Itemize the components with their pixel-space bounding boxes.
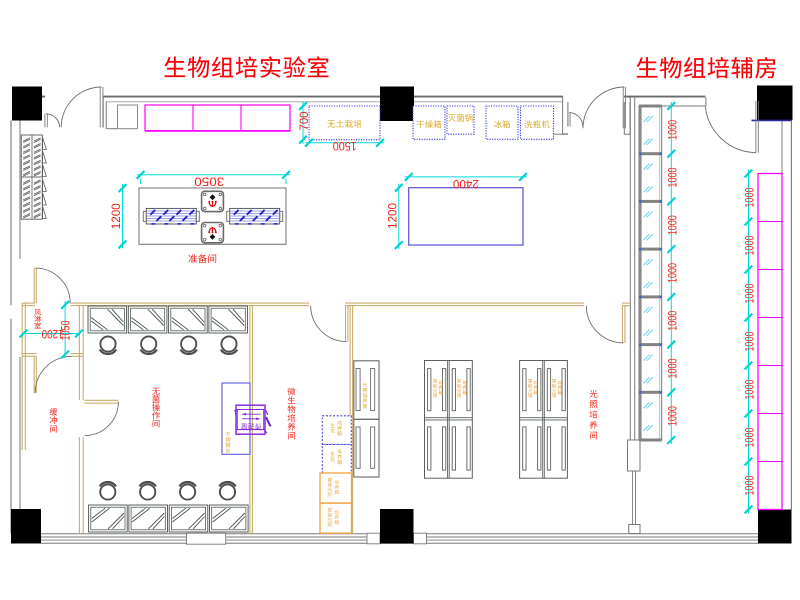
svg-text:1000: 1000 [667,311,679,331]
svg-text:1050: 1050 [60,321,72,341]
svg-text:2400: 2400 [453,177,479,189]
svg-text:1200: 1200 [111,203,123,229]
svg-text:1000: 1000 [667,406,679,426]
svg-text:1000: 1000 [745,236,757,256]
svg-text:1000: 1000 [745,284,757,304]
svg-text:1000: 1000 [667,358,679,378]
svg-text:1000: 1000 [745,332,757,352]
svg-text:1000: 1000 [745,380,757,400]
svg-text:1200: 1200 [387,203,399,229]
svg-text:1000: 1000 [745,188,757,208]
svg-text:1000: 1000 [667,215,679,235]
svg-text:1000: 1000 [667,120,679,140]
svg-text:1000: 1000 [745,428,757,448]
svg-text:3050: 3050 [194,175,224,187]
svg-text:1500: 1500 [333,139,357,151]
svg-text:1000: 1000 [745,476,757,496]
svg-text:1000: 1000 [667,168,679,188]
svg-text:700: 700 [299,112,311,131]
svg-text:1000: 1000 [667,263,679,283]
